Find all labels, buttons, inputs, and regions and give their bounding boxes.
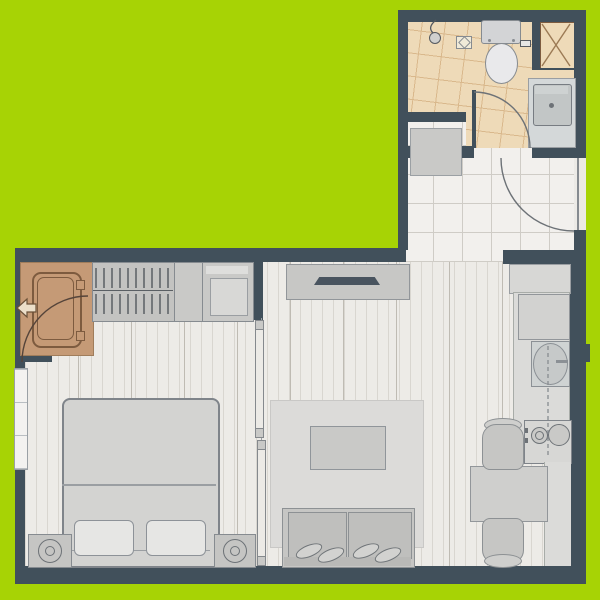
toilet-bowl xyxy=(485,43,518,84)
hanging-rail-closet xyxy=(92,262,176,322)
partition-cap xyxy=(257,556,266,566)
wall-kitchen-divider xyxy=(503,250,574,264)
floor-drain-icon xyxy=(456,36,472,49)
stove-knob xyxy=(525,428,528,433)
entrance-door-leaf xyxy=(577,158,579,230)
shower-head-icon xyxy=(429,32,441,44)
lamp-icon-right-inner xyxy=(230,546,240,556)
chair-back-bottom xyxy=(484,554,522,568)
kitchen-lower-counter xyxy=(544,462,571,566)
coffee-table xyxy=(310,426,386,470)
toilet-hinge-right xyxy=(512,39,515,42)
refrigerator xyxy=(518,294,570,340)
partition-cap xyxy=(255,320,264,330)
clothes-hangers-row-bottom xyxy=(95,294,171,314)
washbasin-top-edge xyxy=(535,86,568,94)
kitchen-faucet-icon xyxy=(556,360,568,363)
shelf-cabinet-top-strip xyxy=(206,266,248,274)
wardrobe-hinge-top xyxy=(76,280,85,290)
closet-side-unit xyxy=(174,262,204,322)
wall-tv-icon xyxy=(314,277,380,285)
pillow-right xyxy=(146,520,206,556)
dining-table xyxy=(470,466,548,522)
washbasin-drain xyxy=(549,103,554,108)
wall-entry-jamb xyxy=(574,230,586,250)
shelf-cabinet-square xyxy=(210,278,248,316)
burner-right xyxy=(548,424,570,446)
wardrobe-hinge-bottom xyxy=(76,331,85,341)
wall-bottom xyxy=(15,566,582,584)
clothes-hangers-row-top xyxy=(95,268,171,288)
toilet-hinge-left xyxy=(488,39,491,42)
washbasin-backsplash xyxy=(528,70,574,78)
burner-left-inner xyxy=(535,431,544,440)
sliding-partition-panel-2 xyxy=(257,440,266,566)
blanket-fold-line xyxy=(62,484,216,486)
hall-storage-cabinet xyxy=(410,128,462,176)
closet-rail xyxy=(93,290,173,291)
wall-bathroom-inner xyxy=(398,112,466,122)
dining-chair-top xyxy=(482,424,524,470)
paper-holder-icon xyxy=(520,40,531,47)
wardrobe-door-inner-panel xyxy=(37,277,74,340)
toilet-tank xyxy=(481,20,521,44)
column-nub xyxy=(582,344,590,362)
lamp-icon-left-inner xyxy=(45,546,55,556)
kitchen-sink-bowl xyxy=(533,343,568,385)
partition-cap xyxy=(257,440,266,450)
floor-plan-canvas xyxy=(0,0,600,600)
pillow-left xyxy=(74,520,134,556)
bathroom-door-leaf xyxy=(472,90,476,148)
partition-cap xyxy=(255,428,264,438)
stove-knob xyxy=(525,438,528,443)
wall-shaft-left xyxy=(532,18,540,70)
bedroom-window xyxy=(14,368,28,470)
kitchen-upper-cabinet xyxy=(509,264,571,294)
service-shaft xyxy=(540,22,576,70)
sliding-partition-panel-1 xyxy=(255,320,264,438)
wall-top-living xyxy=(15,248,406,262)
wall-left-hall xyxy=(398,10,408,250)
entrance-door-opening xyxy=(574,158,586,230)
